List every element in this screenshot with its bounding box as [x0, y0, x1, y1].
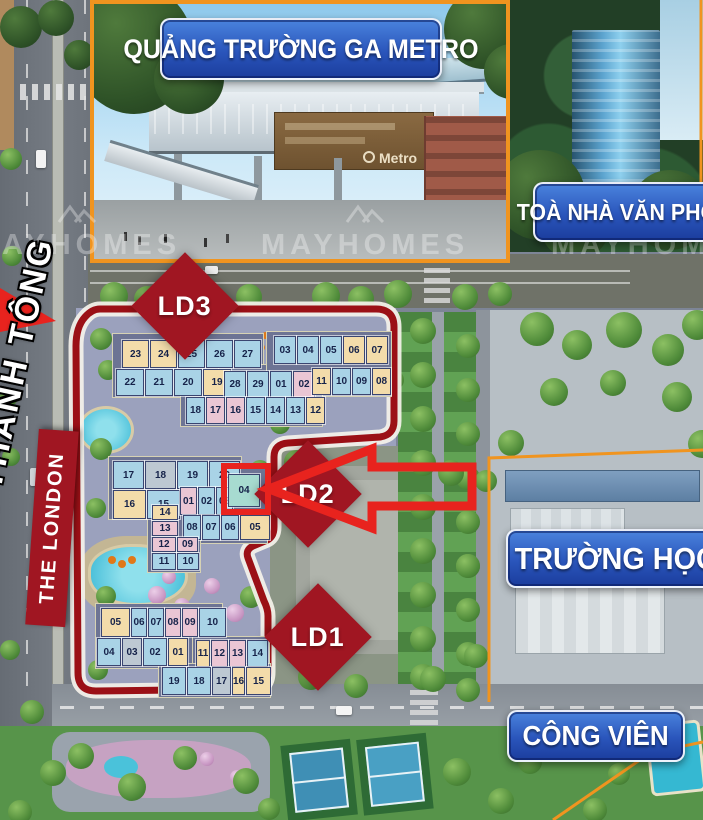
unit-cell-ld3-07[interactable]: 07 — [366, 336, 388, 364]
marker-label: LD1 — [291, 621, 345, 652]
unit-cell-ld3-20[interactable]: 20 — [174, 369, 202, 396]
unit-cell-ld3-17[interactable]: 17 — [206, 397, 225, 424]
selected-unit-highlight[interactable] — [221, 463, 271, 515]
unit-cell-ld1-03[interactable]: 03 — [122, 638, 142, 666]
unit-cell-ld3-04[interactable]: 04 — [297, 336, 319, 364]
unit-cell-ld1-17[interactable]: 17 — [212, 667, 231, 695]
unit-cell-ld3-06[interactable]: 06 — [343, 336, 365, 364]
unit-cell-mid-07[interactable]: 07 — [202, 515, 220, 540]
unit-cell-ld3-08[interactable]: 08 — [372, 368, 391, 395]
unit-cell-mid-05[interactable]: 05 — [240, 515, 270, 540]
unit-cell-ld1-07[interactable]: 07 — [148, 608, 164, 637]
unit-cell-mid-19[interactable]: 19 — [177, 461, 208, 489]
unit-cell-ld1-04[interactable]: 04 — [97, 638, 121, 666]
unit-cell-ld3-11[interactable]: 11 — [312, 368, 331, 395]
unit-cell-ld3-23[interactable]: 23 — [122, 340, 149, 368]
unit-cell-ld3-14[interactable]: 14 — [266, 397, 285, 424]
unit-cell-ld3-29[interactable]: 29 — [247, 371, 269, 398]
unit-cell-ld3-10[interactable]: 10 — [332, 368, 351, 395]
unit-cell-mid-14[interactable]: 14 — [152, 505, 178, 520]
watermark-logo-icon — [345, 204, 385, 224]
unit-cell-ld3-05[interactable]: 05 — [320, 336, 342, 364]
unit-cell-ld3-13[interactable]: 13 — [286, 397, 305, 424]
unit-cell-ld3-21[interactable]: 21 — [145, 369, 173, 396]
unit-cell-ld1-06[interactable]: 06 — [131, 608, 147, 637]
unit-cell-ld1-01[interactable]: 01 — [168, 638, 188, 666]
unit-cell-mid-09[interactable]: 09 — [177, 537, 198, 552]
unit-cell-ld1-10[interactable]: 10 — [199, 608, 226, 637]
school-label: TRƯỜNG HỌC — [506, 529, 703, 588]
park-label: CÔNG VIÊN — [507, 710, 685, 762]
metro-square-label: QUẢNG TRƯỜNG GA METRO — [160, 18, 442, 80]
unit-cell-mid-16[interactable]: 16 — [113, 490, 146, 519]
unit-cell-ld3-28[interactable]: 28 — [224, 371, 246, 398]
unit-cell-mid-12[interactable]: 12 — [152, 537, 176, 552]
unit-cell-ld3-16[interactable]: 16 — [226, 397, 245, 424]
project-boundary — [0, 0, 703, 820]
unit-cell-mid-11[interactable]: 11 — [152, 553, 176, 570]
unit-cell-ld3-15[interactable]: 15 — [246, 397, 265, 424]
unit-cell-mid-06[interactable]: 06 — [221, 515, 239, 540]
unit-cell-ld3-03[interactable]: 03 — [274, 336, 296, 364]
unit-cell-ld3-27[interactable]: 27 — [234, 340, 261, 368]
unit-cell-ld1-14[interactable]: 14 — [247, 640, 268, 667]
unit-cell-ld3-18[interactable]: 18 — [186, 397, 205, 424]
unit-cell-ld1-12[interactable]: 12 — [211, 640, 228, 667]
unit-cell-ld1-13[interactable]: 13 — [229, 640, 246, 667]
watermark: MAYHOMES — [250, 204, 480, 262]
unit-cell-ld3-12[interactable]: 12 — [306, 397, 325, 424]
unit-cell-ld1-02[interactable]: 02 — [143, 638, 167, 666]
unit-cell-mid-13[interactable]: 13 — [152, 521, 178, 536]
unit-cell-ld1-18[interactable]: 18 — [187, 667, 211, 695]
unit-cell-mid-02[interactable]: 02 — [198, 487, 215, 515]
unit-cell-mid-18[interactable]: 18 — [145, 461, 176, 489]
site-map: Metro 2324252627030405060722212019282901… — [0, 0, 703, 820]
unit-cell-ld3-26[interactable]: 26 — [206, 340, 233, 368]
marker-label: LD2 — [281, 478, 335, 509]
office-label: TOÀ NHÀ VĂN PHÒNG — [533, 182, 703, 242]
unit-cell-ld3-01[interactable]: 01 — [270, 371, 292, 398]
unit-cell-ld1-19[interactable]: 19 — [162, 667, 186, 695]
unit-cell-ld1-15[interactable]: 15 — [246, 667, 271, 695]
unit-cell-ld1-05[interactable]: 05 — [101, 608, 130, 637]
unit-cell-ld1-11[interactable]: 11 — [196, 640, 210, 667]
unit-cell-mid-17[interactable]: 17 — [113, 461, 144, 489]
unit-cell-ld1-16[interactable]: 16 — [232, 667, 245, 695]
unit-cell-ld1-09[interactable]: 09 — [182, 608, 198, 637]
unit-cell-mid-10[interactable]: 10 — [177, 553, 199, 570]
unit-cell-ld3-09[interactable]: 09 — [352, 368, 371, 395]
unit-cell-ld3-22[interactable]: 22 — [116, 369, 144, 396]
watermark-text: MAYHOMES — [250, 229, 480, 262]
unit-cell-mid-01[interactable]: 01 — [180, 487, 197, 515]
marker-label: LD3 — [158, 290, 212, 321]
unit-cell-ld1-08[interactable]: 08 — [165, 608, 181, 637]
